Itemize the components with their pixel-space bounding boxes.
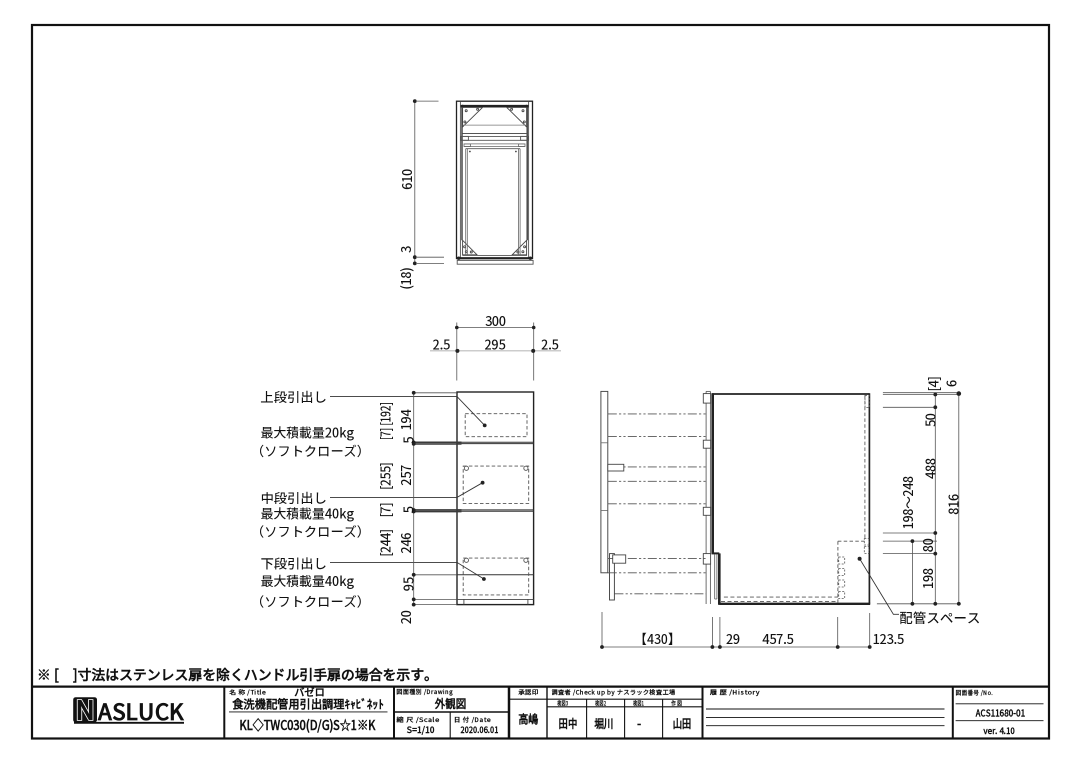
svg-text:29: 29 (726, 629, 741, 648)
svg-text:[7]: [7] (375, 503, 394, 518)
svg-text:2020.06.01: 2020.06.01 (460, 723, 499, 736)
svg-text:下段引出し: 下段引出し (261, 554, 328, 573)
svg-text:（ソフトクローズ）: （ソフトクローズ） (251, 441, 370, 460)
svg-text:田中: 田中 (559, 715, 578, 732)
svg-text:検図2: 検図2 (595, 699, 607, 708)
svg-text:検図3: 検図3 (557, 699, 569, 708)
svg-text:295: 295 (485, 334, 506, 353)
svg-text:外観図: 外観図 (434, 695, 466, 712)
svg-text:最大積載量40kg: 最大積載量40kg (261, 571, 355, 590)
svg-text:山田: 山田 (673, 715, 692, 732)
svg-text:(18): (18) (396, 268, 415, 290)
svg-text:作 図: 作 図 (670, 699, 682, 708)
svg-text:198: 198 (918, 567, 937, 589)
svg-text:20: 20 (396, 609, 415, 624)
svg-text:ACS11680-01: ACS11680-01 (975, 705, 1025, 719)
svg-text:198～248: 198～248 (898, 475, 917, 529)
svg-text:610: 610 (397, 168, 416, 190)
svg-text:ver. 4.10: ver. 4.10 (982, 724, 1014, 737)
svg-text:457.5: 457.5 (762, 629, 793, 648)
svg-text:最大積載量20kg: 最大積載量20kg (261, 423, 355, 442)
svg-text:KL◇TWC030(D/G)S☆1※K: KL◇TWC030(D/G)S☆1※K (239, 714, 376, 734)
svg-text:※ [ ]寸法はステンレス扉を除くハンドル引手扉の場合を示す: ※ [ ]寸法はステンレス扉を除くハンドル引手扉の場合を示す。 (37, 665, 438, 685)
svg-text:50: 50 (920, 412, 939, 427)
svg-text:5: 5 (398, 437, 417, 444)
svg-text:【430】: 【430】 (635, 629, 681, 648)
svg-text:300: 300 (485, 311, 507, 330)
svg-text:堀川: 堀川 (594, 715, 613, 732)
svg-text:[244]: [244] (375, 529, 394, 557)
svg-text:-: - (637, 715, 641, 732)
svg-text:194: 194 (396, 409, 415, 431)
svg-text:3: 3 (396, 246, 415, 253)
svg-text:図面番号 /No.: 図面番号 /No. (955, 688, 993, 697)
svg-text:検図1: 検図1 (633, 699, 645, 708)
svg-text:2.5: 2.5 (541, 334, 558, 353)
svg-text:5: 5 (398, 507, 417, 514)
svg-text:123.5: 123.5 (873, 629, 904, 648)
svg-text:高嶋: 高嶋 (518, 711, 538, 728)
svg-text:調査者 /Check up by ナスラック検査工場: 調査者 /Check up by ナスラック検査工場 (551, 688, 676, 698)
svg-text:6: 6 (941, 379, 960, 387)
svg-text:承認印: 承認印 (517, 687, 538, 696)
svg-text:最大積載量40kg: 最大積載量40kg (261, 503, 355, 522)
svg-text:（ソフトクローズ）: （ソフトクローズ） (251, 521, 370, 540)
svg-text:95: 95 (398, 577, 417, 591)
svg-text:食洗機配管用引出調理ｷｬﾋﾞﾈｯﾄ: 食洗機配管用引出調理ｷｬﾋﾞﾈｯﾄ (231, 696, 383, 713)
svg-text:配管スペース: 配管スペース (899, 607, 980, 627)
svg-text:488: 488 (920, 457, 939, 479)
svg-text:[7] [192]: [7] [192] (375, 402, 394, 440)
svg-text:（ソフトクローズ）: （ソフトクローズ） (251, 591, 370, 610)
svg-text:[255]: [255] (375, 462, 394, 490)
svg-text:257: 257 (396, 465, 415, 486)
svg-text:2.5: 2.5 (433, 334, 450, 353)
svg-text:履 歴 /History: 履 歴 /History (709, 687, 760, 697)
svg-text:上段引出し: 上段引出し (261, 387, 328, 406)
svg-text:80: 80 (918, 537, 937, 552)
svg-text:816: 816 (944, 493, 963, 515)
svg-text:246: 246 (396, 532, 415, 554)
svg-text:S=1/10: S=1/10 (407, 723, 435, 736)
svg-text:[4]: [4] (924, 376, 943, 391)
